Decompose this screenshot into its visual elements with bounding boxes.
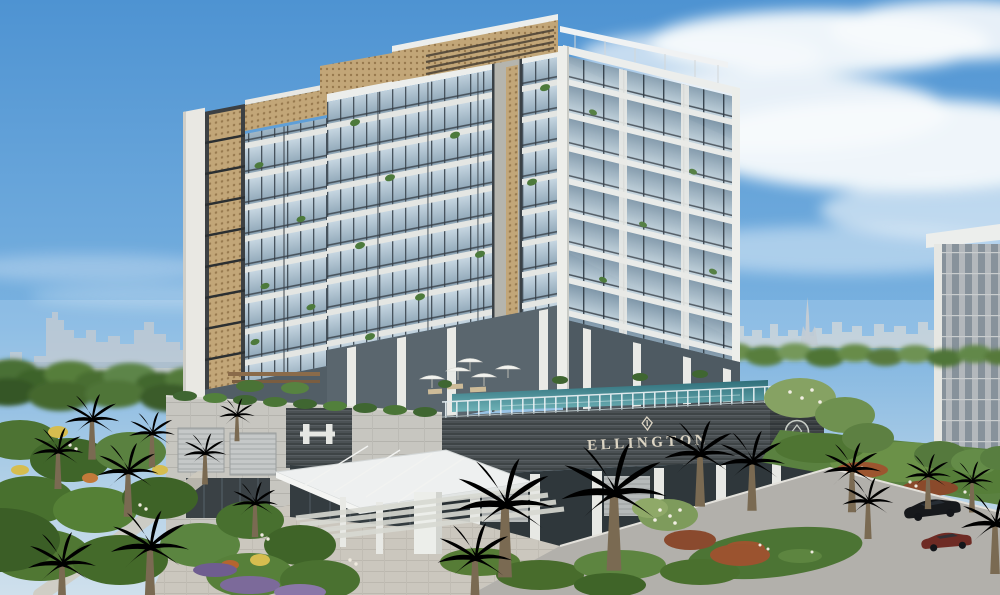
- rendering-canvas: ELLINGTON: [0, 0, 1000, 595]
- lavender-bed: [220, 576, 280, 594]
- monogram-panel: [286, 408, 352, 468]
- scene-rendering: ELLINGTON: [0, 0, 1000, 595]
- gold-screen-strip: [209, 109, 241, 395]
